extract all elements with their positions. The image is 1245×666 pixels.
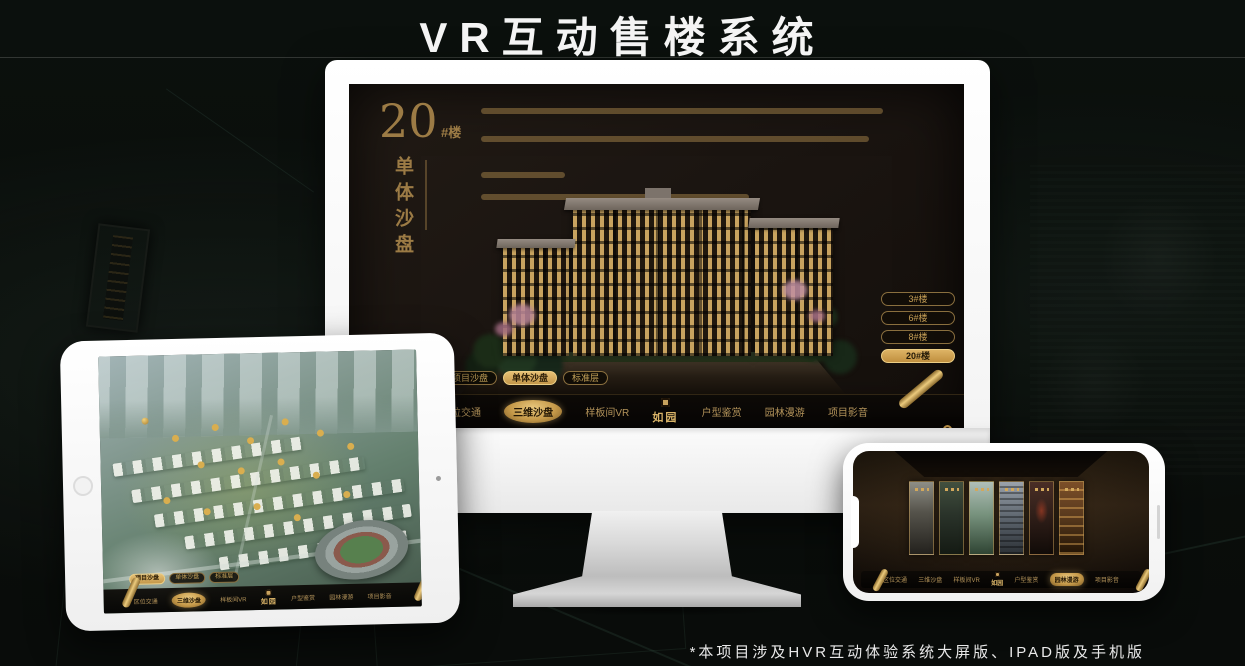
text-line-decor: [481, 108, 883, 114]
monitor-stand: [513, 511, 801, 607]
scroll-brush-icon[interactable]: [109, 577, 120, 611]
footnote-text: *本项目涉及HVR互动体验系统大屏版、IPAD版及手机版: [690, 641, 1145, 662]
seal-icon: [995, 572, 1000, 577]
phone-nav-location[interactable]: 区位交通: [883, 575, 907, 584]
roof-slab-decor: [496, 239, 575, 248]
tab-single-sandtable[interactable]: 单体沙盘: [503, 371, 557, 385]
phone-app-screen: 区位交通 三维沙盘 样板间VR 如园 户型鉴赏 园林漫游 项目影音: [853, 451, 1149, 593]
building-button-6[interactable]: 6#楼: [881, 311, 955, 325]
heading-subtitle-vertical: 单体沙盘: [389, 156, 416, 274]
seal-icon: [661, 398, 670, 407]
phone-nav-showroom-vr[interactable]: 样板间VR: [954, 575, 980, 584]
phone-brand-logo-text: 如园: [991, 581, 1003, 587]
tablet-nav-floorplans[interactable]: 户型鉴赏: [291, 592, 315, 602]
phone-nav-3d-sandtable[interactable]: 三维沙盘: [918, 575, 942, 584]
tablet-camera-dot: [436, 476, 441, 481]
tab-standard-floor[interactable]: 标准层: [563, 371, 608, 385]
building-left-wing: [503, 246, 569, 356]
building-number-suffix: #楼: [441, 122, 461, 141]
rooftop-structure-decor: [645, 188, 671, 198]
phone-nav-project-media[interactable]: 项目影音: [1095, 575, 1119, 584]
building-number-heading: 20: [379, 94, 438, 148]
tablet-nav-3d-sandtable[interactable]: 三维沙盘: [172, 592, 206, 608]
scroll-rod-decor: [897, 368, 945, 410]
phone-side-button[interactable]: [1157, 505, 1160, 539]
map-road-decor: [166, 88, 314, 192]
building-main-block: [573, 208, 751, 356]
tablet-nav-project-media[interactable]: 项目影音: [367, 591, 391, 601]
scroll-brush-icon[interactable]: [894, 384, 948, 428]
building-button-3[interactable]: 3#楼: [881, 292, 955, 306]
tablet-app-screen: 项目沙盘 单体沙盘 标准层 区位交通 三维沙盘 样板间VR 如园 户型鉴赏 园林…: [98, 349, 422, 613]
page-title: VR互动售楼系统: [0, 4, 1245, 65]
tablet-device: 项目沙盘 单体沙盘 标准层 区位交通 三维沙盘 样板间VR 如园 户型鉴赏 园林…: [60, 333, 460, 632]
background-photo-texture: [1030, 165, 1245, 475]
blossom-tree-decor: [509, 304, 535, 326]
tablet-brand-logo: 如园: [261, 589, 277, 606]
scene-panel-landscape[interactable]: [969, 481, 994, 555]
scroll-brush-icon[interactable]: [1128, 568, 1137, 590]
seal-icon: [266, 589, 272, 595]
scene-panel-library[interactable]: [1059, 481, 1084, 555]
city-blocks-decor: [98, 349, 422, 438]
facade-seams-decor: [573, 208, 751, 356]
text-line-decor: [481, 136, 869, 142]
tablet-nav-showroom-vr[interactable]: 样板间VR: [220, 594, 247, 604]
phone-nav-garden-tour[interactable]: 园林漫游: [1050, 573, 1084, 586]
framed-plaque-decor: [86, 223, 150, 333]
nav-item-3d-sandtable[interactable]: 三维沙盘: [504, 400, 562, 423]
tablet-nav-garden-tour[interactable]: 园林漫游: [329, 591, 353, 601]
scene-panel-courtyard[interactable]: [909, 481, 934, 555]
nav-item-showroom-vr[interactable]: 样板间VR: [585, 404, 629, 419]
roof-slab-decor: [564, 198, 760, 210]
heading-english-line-decor: [425, 160, 427, 230]
scroll-brush-icon[interactable]: [401, 571, 412, 605]
building-selector-group: 3#楼 6#楼 8#楼 20#楼: [881, 292, 955, 368]
roof-slab-decor: [748, 218, 839, 228]
tablet-nav-location[interactable]: 区位交通: [134, 596, 158, 606]
sandtable-subtabs: 项目沙盘 单体沙盘 标准层: [443, 371, 608, 385]
panel-caption-decor: [975, 488, 989, 491]
tree-blob-decor: [473, 334, 507, 368]
phone-nav-floorplans[interactable]: 户型鉴赏: [1014, 575, 1038, 584]
tablet-tab-standard-floor[interactable]: 标准层: [209, 571, 239, 583]
scene-panel-interior[interactable]: [1029, 481, 1054, 555]
building-button-20[interactable]: 20#楼: [881, 349, 955, 363]
brand-logo: 如园: [652, 398, 678, 425]
brand-logo-text: 如园: [652, 412, 678, 424]
tablet-brand-logo-text: 如园: [261, 598, 277, 605]
blossom-tree-decor: [783, 280, 807, 300]
scene-panel-garden[interactable]: [939, 481, 964, 555]
building-button-8[interactable]: 8#楼: [881, 330, 955, 344]
phone-notch: [851, 496, 859, 548]
scroll-tip-decor: [943, 425, 952, 428]
tablet-tab-single-sandtable[interactable]: 单体沙盘: [169, 572, 205, 584]
phone-navbar: 区位交通 三维沙盘 样板间VR 如园 户型鉴赏 园林漫游 项目影音: [861, 571, 1141, 588]
phone-device: 区位交通 三维沙盘 样板间VR 如园 户型鉴赏 园林漫游 项目影音: [843, 443, 1165, 601]
nav-item-floorplans[interactable]: 户型鉴赏: [702, 404, 742, 419]
scroll-brush-icon[interactable]: [865, 568, 874, 590]
panel-caption-decor: [945, 488, 959, 491]
facade-seams-decor: [503, 246, 569, 356]
nav-item-project-media[interactable]: 项目影音: [828, 404, 868, 419]
phone-brand-logo: 如园: [991, 572, 1003, 587]
panel-caption-decor: [1065, 488, 1079, 491]
panel-caption-decor: [1005, 488, 1019, 491]
interior-beam-decor: [894, 451, 1107, 477]
scene-panel-building[interactable]: [999, 481, 1024, 555]
building-3d-model[interactable]: [445, 170, 861, 396]
nav-item-garden-tour[interactable]: 园林漫游: [765, 404, 805, 419]
panel-caption-decor: [1035, 488, 1049, 491]
panel-caption-decor: [915, 488, 929, 491]
